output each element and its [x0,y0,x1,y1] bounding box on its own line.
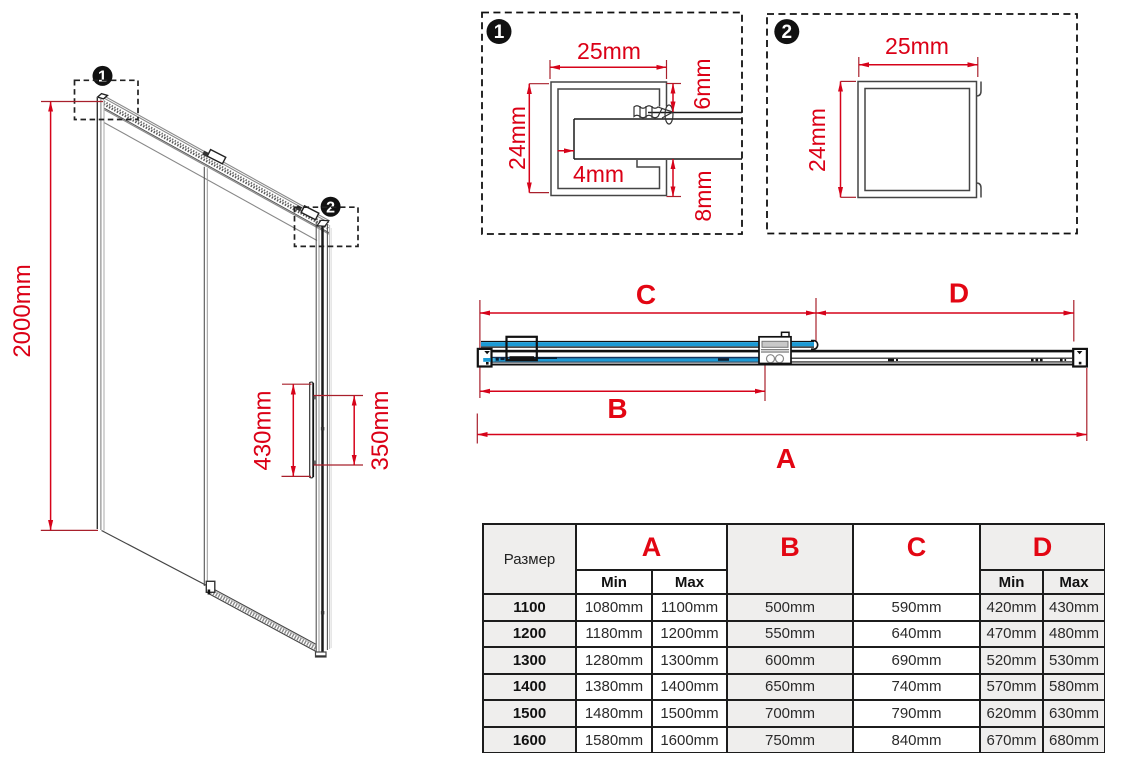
svg-text:C: C [636,279,656,310]
svg-text:B: B [607,393,627,424]
svg-text:350mm: 350mm [367,390,394,470]
svg-text:D: D [949,278,969,309]
svg-text:430mm: 430mm [249,390,276,470]
svg-text:24mm: 24mm [804,108,830,172]
svg-text:1: 1 [98,69,107,86]
svg-text:6mm: 6mm [689,58,715,109]
svg-text:25mm: 25mm [885,33,949,59]
svg-text:25mm: 25mm [577,38,641,64]
svg-text:2: 2 [782,22,793,43]
svg-text:24mm: 24mm [504,106,530,170]
svg-text:8mm: 8mm [690,170,716,221]
svg-text:A: A [776,443,796,474]
svg-text:1: 1 [494,22,505,43]
svg-text:4mm: 4mm [573,161,624,187]
svg-text:2000mm: 2000mm [9,264,36,357]
